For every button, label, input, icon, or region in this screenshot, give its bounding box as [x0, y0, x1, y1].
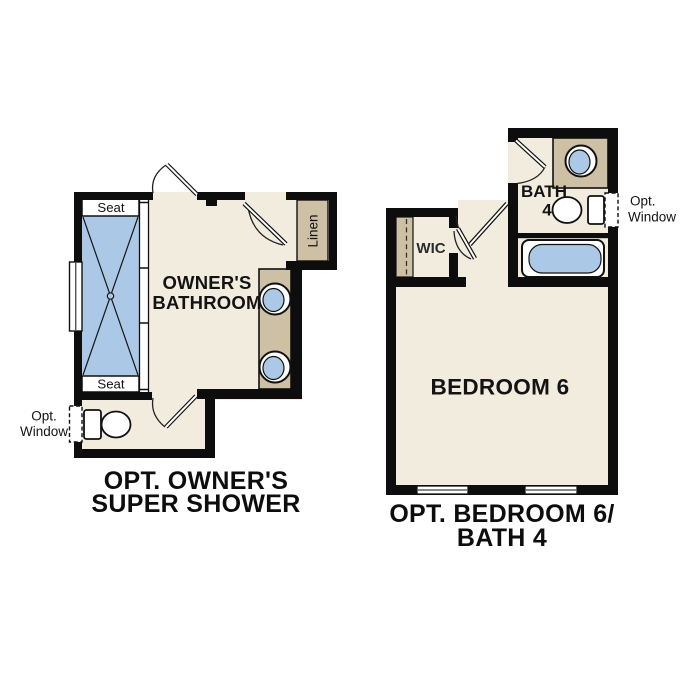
opt-window2-label-line1: Opt. — [630, 194, 656, 209]
wall-segment — [508, 277, 618, 287]
wic-label: WIC — [416, 240, 445, 257]
wall-segment — [386, 277, 466, 287]
owners-bathroom-label-line2: BATHROOM — [152, 292, 261, 313]
shower-drain-icon — [107, 293, 113, 299]
opt-window2-label-line2: Window — [628, 210, 676, 225]
sink-basin — [569, 150, 590, 174]
sink-basin — [263, 289, 284, 312]
wall-segment — [329, 192, 337, 270]
door-arc-icon — [153, 165, 166, 193]
tub-basin — [529, 245, 601, 274]
super-shower — [82, 198, 149, 393]
wall-segment — [386, 208, 396, 495]
wall-segment — [197, 192, 245, 200]
door-leaf-icon — [167, 165, 197, 195]
bath4-label-line2: 4 — [542, 201, 552, 220]
wall-segment — [74, 392, 152, 400]
left-plan-title-line2: SUPER SHOWER — [91, 490, 300, 518]
wall-segment — [74, 449, 215, 458]
right-plan-title-line2: BATH 4 — [457, 524, 547, 552]
wall-segment — [74, 192, 153, 200]
opt-window-label-line1: Opt. — [31, 409, 57, 424]
sink-basin — [263, 357, 284, 380]
wall-segment — [608, 128, 618, 193]
seat-label-top: Seat — [97, 200, 124, 215]
wall-segment — [386, 208, 458, 217]
wall-segment — [291, 261, 302, 399]
owners-bathroom-label-line1: OWNER'S — [162, 272, 251, 293]
bath4-tub-icon — [518, 233, 608, 277]
wall-segment — [205, 392, 215, 458]
tub-divider-wall — [518, 233, 608, 238]
seat-label-bottom: Seat — [97, 377, 124, 392]
wall-segment — [508, 128, 618, 138]
linen-label: Linen — [306, 214, 321, 247]
wall-segment — [508, 183, 518, 287]
toilet-tank — [84, 410, 101, 439]
optional-window-marker — [70, 406, 83, 442]
optional-window-marker — [605, 193, 618, 227]
bath4-label-line1: BATH — [521, 182, 567, 201]
floorplan-svg: Seat Seat OWNER'S BATHROOM Linen Opt. Wi… — [0, 0, 687, 687]
wic-shelf — [396, 217, 413, 277]
wall-segment — [608, 227, 618, 495]
bedroom6-label: BEDROOM 6 — [431, 375, 570, 400]
opt-window-label-line2: Window — [20, 424, 68, 439]
floorplan-canvas: Seat Seat OWNER'S BATHROOM Linen Opt. Wi… — [0, 0, 687, 687]
shower-glass-panel — [140, 198, 149, 393]
vestibule-floor — [458, 200, 508, 208]
toilet-tank — [588, 196, 604, 224]
toilet-bowl — [102, 412, 131, 438]
wall-segment — [206, 199, 217, 206]
